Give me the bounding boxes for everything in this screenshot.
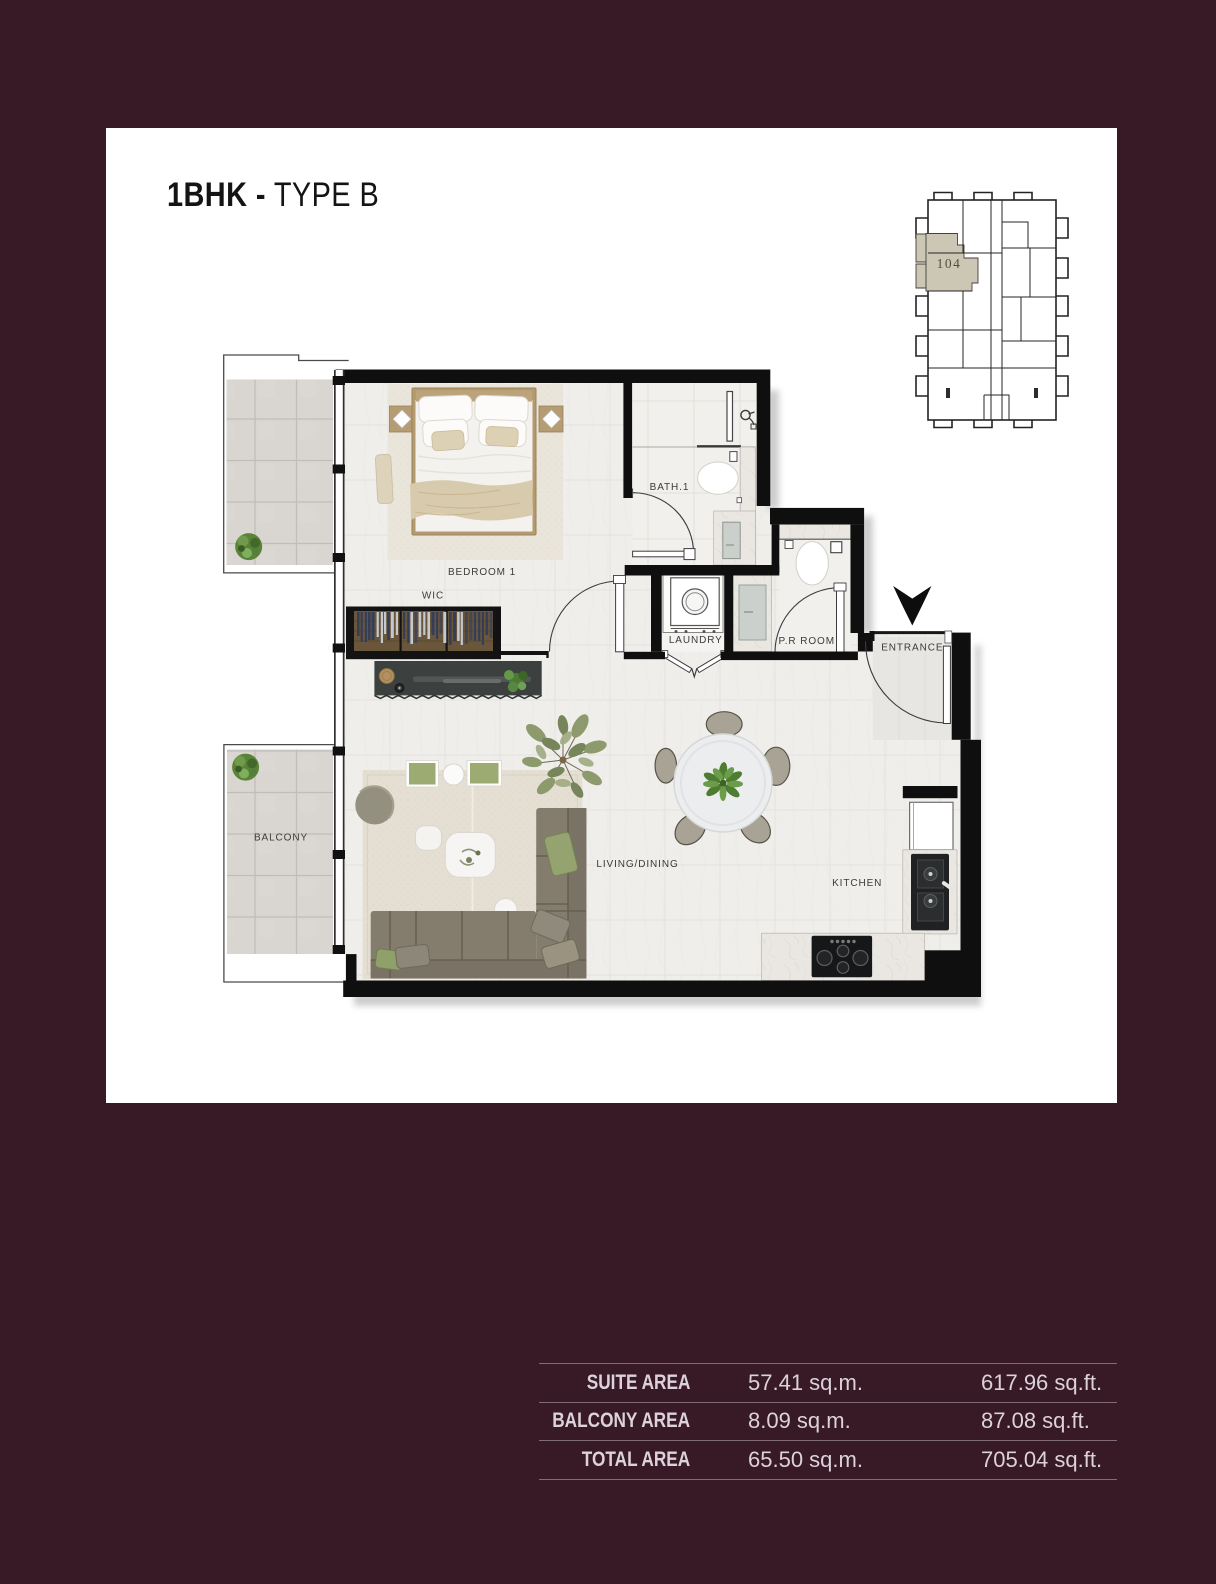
svg-text:104: 104	[937, 256, 962, 271]
svg-text:P.R ROOM: P.R ROOM	[778, 636, 834, 647]
svg-text:WIC: WIC	[422, 591, 444, 602]
svg-text:KITCHEN: KITCHEN	[832, 878, 882, 889]
svg-text:LAUNDRY: LAUNDRY	[669, 635, 723, 646]
svg-text:BALCONY: BALCONY	[254, 833, 308, 844]
svg-text:LIVING/DINING: LIVING/DINING	[596, 859, 678, 870]
svg-text:BATH.1: BATH.1	[650, 482, 690, 493]
svg-text:BEDROOM 1: BEDROOM 1	[448, 567, 516, 578]
svg-text:ENTRANCE: ENTRANCE	[881, 643, 943, 654]
